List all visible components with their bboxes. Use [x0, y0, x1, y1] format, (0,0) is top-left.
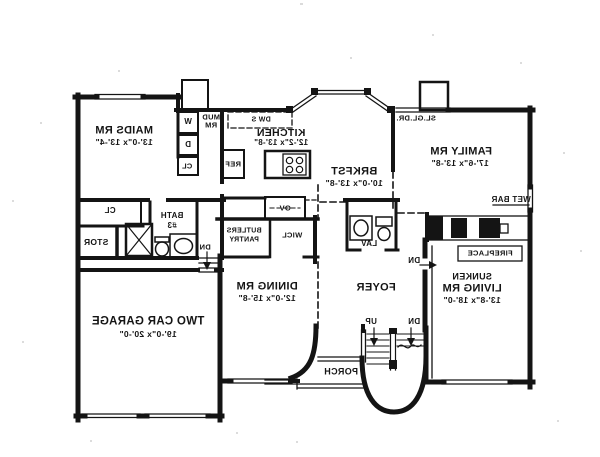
mudroom-bump: [182, 80, 208, 110]
brkfst-label: BRKFST: [331, 167, 377, 178]
wicl-label: WICL: [282, 231, 302, 239]
floor-plan-linework: [0, 0, 600, 457]
living-rm-label: LIVING RM: [442, 284, 502, 295]
dining-rm-dims: 12'-0"x 15'-8": [238, 294, 295, 303]
brkfst-dims: 10'-0"x 13'-8": [325, 179, 382, 188]
family-rm-dims: 17'-6"x 13'-8": [431, 159, 488, 168]
garage-dims: 19'-0"x 20'-0": [119, 330, 176, 339]
dn-garage-arrow: [203, 252, 211, 270]
mud-closet-label: CL: [182, 162, 193, 170]
hall-closet-label: CL: [104, 207, 115, 215]
porch-label: PORCH: [324, 368, 358, 377]
sliding-door-label: SL.GL.DR.: [396, 114, 436, 122]
dw-sink-label: DW S: [251, 117, 270, 124]
chimney-box: [420, 82, 448, 110]
dn-living-arrow: [420, 261, 437, 269]
lav-sink: [350, 216, 372, 240]
kitchen-dims: 12'-2"x 13'-8": [254, 139, 308, 147]
floor-plan: MAIDS RM 13'-0"x 13'-4" MUD RM W D CL KI…: [0, 0, 600, 457]
bath-label-1: BATH: [161, 212, 184, 220]
kitchen-island: [265, 151, 310, 178]
stairs-up-label: UP: [365, 318, 377, 326]
stor-label: STOR: [84, 238, 109, 247]
oven-label: OV: [279, 204, 290, 212]
sunken-label: SUNKEN: [452, 273, 492, 282]
stairs-dn-label: DN: [408, 318, 420, 326]
fireplace-label: FIREPLACE: [467, 249, 512, 257]
bath-label-2: #3: [167, 222, 177, 230]
bath-sink: [170, 234, 197, 258]
wet-bar-label: WET BAR: [491, 196, 530, 204]
family-rm-label: FAMILY RM: [430, 147, 492, 158]
foyer-label: FOYER: [356, 283, 395, 294]
kitchen-label: KITCHEN: [257, 128, 306, 139]
dn-garage-label: DN: [199, 243, 210, 251]
stairs-up-arrow: [370, 328, 378, 346]
washer-label: W: [184, 118, 192, 126]
stairs-dn-arrow: [407, 328, 415, 346]
dryer-label: D: [185, 141, 191, 149]
butlers-pantry-label-2: PANTRY: [229, 237, 259, 244]
shower-stall: [126, 224, 152, 256]
bath-toilet: [155, 237, 169, 256]
dining-rm-label: DINING RM: [236, 282, 297, 293]
butlers-pantry-label-1: BUTLERS: [226, 228, 261, 235]
lav-toilet: [376, 217, 392, 241]
garage-label: TWO CAR GARAGE: [92, 316, 205, 328]
ref-label: REF: [225, 160, 241, 168]
maids-rm-label: MAIDS RM: [95, 126, 153, 137]
maids-rm-dims: 13'-0"x 13'-4": [95, 138, 152, 147]
living-rm-dims: 13'-8"x 18'-0": [443, 296, 500, 305]
staircase: [367, 328, 424, 370]
dn-living-label: DN: [408, 257, 420, 265]
lav-label: LAV: [361, 240, 377, 248]
mud-rm-label-2: RM: [205, 121, 217, 129]
